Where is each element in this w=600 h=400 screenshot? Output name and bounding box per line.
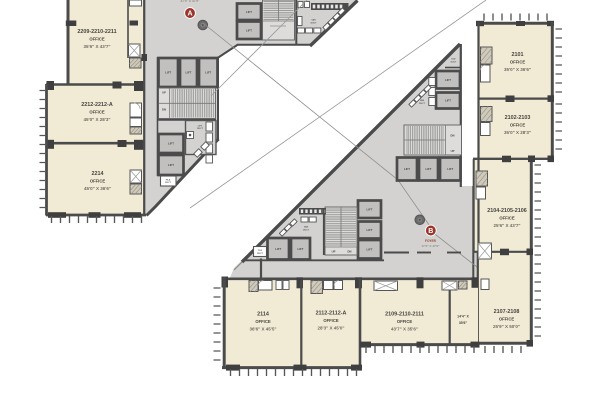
svg-text:LIFT: LIFT xyxy=(367,228,373,232)
svg-text:2212-2212-A: 2212-2212-A xyxy=(81,102,113,108)
svg-text:35'6": 35'6" xyxy=(459,321,468,325)
svg-text:UP: UP xyxy=(451,149,455,153)
svg-text:35'6" X 43'7": 35'6" X 43'7" xyxy=(84,44,111,49)
svg-text:A: A xyxy=(187,10,192,17)
svg-text:LIFT: LIFT xyxy=(186,71,192,75)
svg-text:OFFICE: OFFICE xyxy=(323,318,339,323)
svg-text:2101: 2101 xyxy=(512,52,524,58)
svg-text:LIFT: LIFT xyxy=(205,71,211,75)
svg-text:2109-2110-2111: 2109-2110-2111 xyxy=(385,312,424,318)
svg-text:VAN: VAN xyxy=(304,226,309,229)
svg-text:FOYER: FOYER xyxy=(425,239,437,243)
svg-text:2104-2105-2106: 2104-2105-2106 xyxy=(487,208,527,214)
svg-text:LIFT: LIFT xyxy=(246,28,252,32)
svg-text:DN: DN xyxy=(348,250,352,254)
svg-text:47'0" X 47'9": 47'0" X 47'9" xyxy=(180,0,200,3)
svg-text:43'7" X 35'6": 43'7" X 35'6" xyxy=(391,326,418,331)
svg-text:DUCT: DUCT xyxy=(451,62,458,64)
svg-text:DUCT: DUCT xyxy=(197,128,204,130)
svg-text:VAN: VAN xyxy=(420,99,425,102)
svg-text:LIFT: LIFT xyxy=(426,167,432,171)
svg-text:2214: 2214 xyxy=(92,171,104,177)
svg-text:45'0" X 28'3": 45'0" X 28'3" xyxy=(84,117,111,122)
svg-text:VAN: VAN xyxy=(311,19,316,22)
svg-text:14'4" X: 14'4" X xyxy=(457,315,469,319)
svg-text:OFFICE: OFFICE xyxy=(89,109,105,114)
svg-text:LIFT: LIFT xyxy=(198,126,203,128)
svg-text:28'3" X 45'0": 28'3" X 45'0" xyxy=(318,325,345,330)
svg-text:LIFT: LIFT xyxy=(168,163,174,167)
svg-text:25'6" X 43'7": 25'6" X 43'7" xyxy=(494,223,521,228)
svg-text:25'9" X 50'0": 25'9" X 50'0" xyxy=(493,324,520,329)
svg-text:LIFT: LIFT xyxy=(445,78,451,82)
svg-text:DUCT: DUCT xyxy=(419,103,426,105)
svg-text:UP: UP xyxy=(162,91,166,95)
svg-text:DUCT: DUCT xyxy=(257,253,264,255)
svg-text:LIFT: LIFT xyxy=(275,247,281,251)
svg-text:35'0" X 28'3": 35'0" X 28'3" xyxy=(504,130,531,135)
svg-text:OFFICE: OFFICE xyxy=(397,319,413,324)
svg-text:OFFICE: OFFICE xyxy=(510,59,526,64)
svg-text:47'0" X 47'9": 47'0" X 47'9" xyxy=(422,244,441,248)
svg-text:LIFT: LIFT xyxy=(298,247,304,251)
svg-text:DUCT: DUCT xyxy=(165,182,172,184)
svg-text:UP: UP xyxy=(332,250,336,254)
svg-text:LIFT: LIFT xyxy=(168,142,174,146)
svg-text:2102-2103: 2102-2103 xyxy=(505,115,531,121)
svg-text:OFFICE: OFFICE xyxy=(499,316,515,321)
svg-text:OFFICE: OFFICE xyxy=(89,36,105,41)
svg-text:LIFT: LIFT xyxy=(165,71,171,75)
svg-text:OFFICE: OFFICE xyxy=(90,178,106,183)
svg-text:ELE: ELE xyxy=(451,59,456,61)
svg-text:2107-2108: 2107-2108 xyxy=(494,309,520,315)
svg-text:DN: DN xyxy=(162,108,166,112)
svg-text:LIFT: LIFT xyxy=(246,10,252,14)
svg-text:36'6" X 45'5": 36'6" X 45'5" xyxy=(250,326,277,331)
svg-text:DN: DN xyxy=(451,134,455,138)
svg-text:DUCT: DUCT xyxy=(303,230,310,232)
svg-text:OFFICE: OFFICE xyxy=(510,122,526,127)
svg-text:TLE: TLE xyxy=(258,250,263,252)
svg-text:LIFT: LIFT xyxy=(404,167,410,171)
svg-text:B: B xyxy=(428,228,433,235)
svg-text:FILE: FILE xyxy=(166,179,171,181)
svg-text:LIFT: LIFT xyxy=(367,207,373,211)
svg-text:OFFICE: OFFICE xyxy=(255,319,271,324)
svg-text:35'0" X 36'6": 35'0" X 36'6" xyxy=(504,67,531,72)
svg-text:2114: 2114 xyxy=(257,312,269,318)
svg-text:LIFT: LIFT xyxy=(367,247,373,251)
svg-text:2209-2210-2211: 2209-2210-2211 xyxy=(77,29,116,35)
svg-text:OFFICE: OFFICE xyxy=(499,215,515,220)
svg-text:LIFT: LIFT xyxy=(445,99,451,103)
svg-text:45'0" X 36'6": 45'0" X 36'6" xyxy=(84,186,111,191)
svg-text:DUCT: DUCT xyxy=(311,22,318,24)
svg-text:2112-2112-A: 2112-2112-A xyxy=(316,311,347,317)
svg-text:LIFT: LIFT xyxy=(447,167,453,171)
